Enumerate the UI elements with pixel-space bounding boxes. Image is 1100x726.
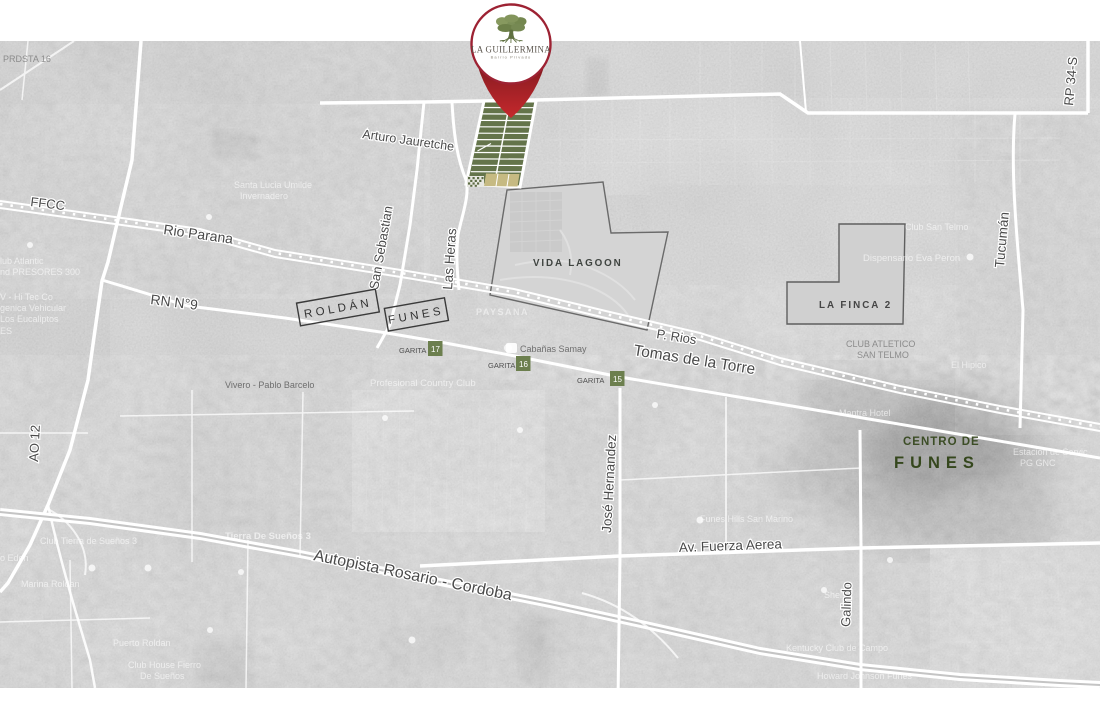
svg-text:V - Hi Tec Co: V - Hi Tec Co <box>0 292 53 302</box>
svg-text:GARITA: GARITA <box>399 346 426 355</box>
svg-text:15: 15 <box>613 375 622 384</box>
svg-text:Kentucky Club de Campo: Kentucky Club de Campo <box>786 643 888 653</box>
svg-text:Los Eucaliptos: Los Eucaliptos <box>0 314 59 324</box>
svg-text:CENTRO DE: CENTRO DE <box>903 436 980 448</box>
svg-text:Funes Hills San Marino: Funes Hills San Marino <box>700 514 793 524</box>
svg-text:LA FINCA 2: LA FINCA 2 <box>819 300 892 311</box>
svg-text:AO 12: AO 12 <box>26 425 43 463</box>
svg-text:VIDA LAGOON: VIDA LAGOON <box>533 258 623 269</box>
svg-text:Club Tierra de Sueños 3: Club Tierra de Sueños 3 <box>40 536 137 546</box>
svg-text:Dispensario Eva Peron: Dispensario Eva Peron <box>863 253 960 264</box>
svg-text:Profesional Country Club: Profesional Country Club <box>370 378 476 389</box>
svg-text:De Sueños: De Sueños <box>140 671 185 681</box>
svg-text:FUNES: FUNES <box>894 454 980 472</box>
svg-text:Club San Telmo: Club San Telmo <box>905 222 968 232</box>
svg-text:El Hipico: El Hipico <box>951 360 987 370</box>
svg-text:o Eden: o Eden <box>0 553 29 563</box>
svg-text:CLUB ATLETICO: CLUB ATLETICO <box>846 339 915 349</box>
svg-text:Howard Johnson Funes: Howard Johnson Funes <box>817 671 913 681</box>
svg-text:Puerto Roldan: Puerto Roldan <box>113 638 171 648</box>
svg-text:GARITA: GARITA <box>488 361 515 370</box>
svg-text:Invernadero: Invernadero <box>240 191 288 201</box>
svg-text:Barrio Privado: Barrio Privado <box>491 55 532 60</box>
svg-text:nd PRESORES 300: nd PRESORES 300 <box>0 267 80 277</box>
svg-text:Estación de Servic: Estación de Servic <box>1013 447 1088 457</box>
svg-text:17: 17 <box>431 345 440 354</box>
svg-text:PAYSANA: PAYSANA <box>476 307 529 317</box>
svg-text:genica Vehicular: genica Vehicular <box>0 303 66 313</box>
svg-text:Vivero - Pablo Barcelo: Vivero - Pablo Barcelo <box>225 380 314 390</box>
svg-text:PRDSTA 16: PRDSTA 16 <box>3 54 51 64</box>
svg-text:16: 16 <box>519 360 528 369</box>
svg-text:PG GNC: PG GNC <box>1020 458 1056 468</box>
svg-text:Galindo: Galindo <box>838 582 855 627</box>
svg-text:Club House Fierro: Club House Fierro <box>128 660 201 670</box>
svg-text:Shell: Shell <box>824 590 844 600</box>
svg-text:Marina Roldan: Marina Roldan <box>21 579 80 589</box>
svg-text:lub Atlantic: lub Atlantic <box>0 256 44 266</box>
svg-text:SAN TELMO: SAN TELMO <box>857 350 909 360</box>
svg-text:Tierra De Sueños 3: Tierra De Sueños 3 <box>225 531 311 542</box>
svg-text:GARITA: GARITA <box>577 376 604 385</box>
svg-text:Mantra Hotel: Mantra Hotel <box>839 408 891 418</box>
svg-text:Cabañas Samay: Cabañas Samay <box>520 344 587 354</box>
svg-text:ES: ES <box>0 326 12 336</box>
svg-text:Santa Lucia Umilde: Santa Lucia Umilde <box>234 180 312 190</box>
svg-text:LA GUILLERMINA: LA GUILLERMINA <box>471 45 551 55</box>
